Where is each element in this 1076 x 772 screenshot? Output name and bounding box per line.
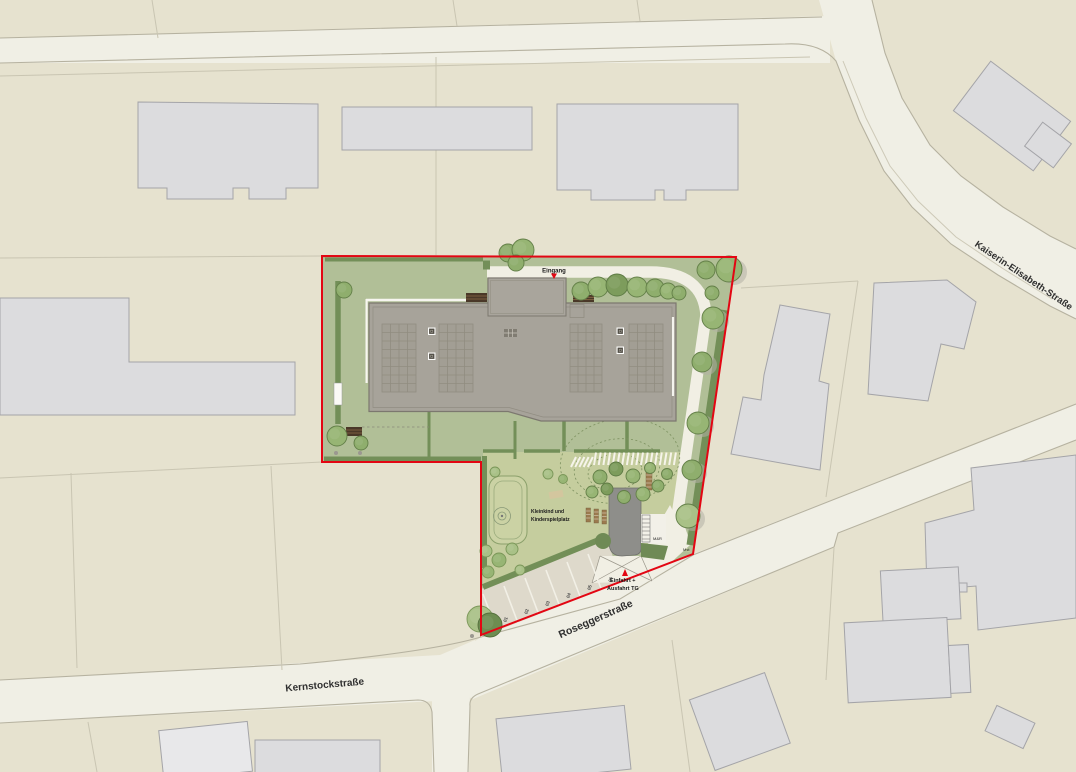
- svg-text:Kinderspielplatz: Kinderspielplatz: [531, 517, 570, 523]
- svg-text:Einfahrt +: Einfahrt +: [610, 578, 636, 584]
- svg-text:M&R: M&R: [653, 536, 662, 541]
- svg-text:Ausfahrt TG: Ausfahrt TG: [607, 586, 639, 592]
- svg-text:Kleinkind und: Kleinkind und: [531, 509, 564, 515]
- svg-text:Mst: Mst: [683, 547, 690, 552]
